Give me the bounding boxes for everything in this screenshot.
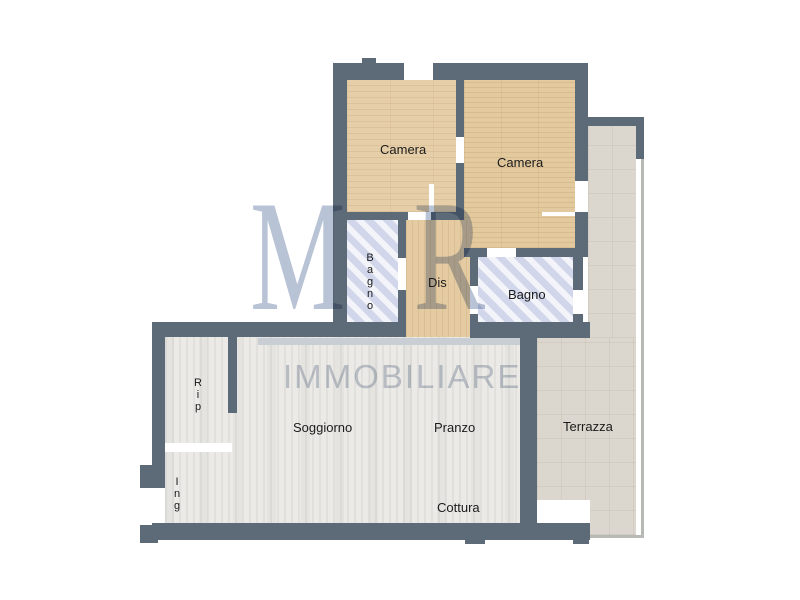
window-bagno2-terrace [573, 290, 583, 314]
floorplan-canvas: MR IMMOBILIARE Camera Camera Bagno Dis B… [0, 0, 800, 600]
wall-bagno2-right-lower [573, 314, 583, 322]
entrance-door-opening [152, 488, 165, 523]
room-label-soggiorno: Soggiorno [293, 420, 352, 435]
terrace-outline-bottom [588, 535, 644, 538]
wall-foot-right [573, 540, 589, 544]
window-top-wall [404, 63, 433, 80]
wall-pranzo-terrace [520, 337, 537, 523]
room-label-dis: Dis [428, 275, 447, 290]
room-label-camera-2: Camera [497, 155, 543, 170]
room-label-terrazza: Terrazza [563, 419, 613, 434]
room-label-pranzo: Pranzo [434, 420, 475, 435]
wall-rip-partition [228, 333, 237, 413]
watermark-brand-text: IMMOBILIARE [283, 358, 521, 396]
door-between-bedrooms [456, 137, 464, 163]
wall-corner-foot-left [140, 525, 158, 543]
wall-bottom [152, 523, 590, 540]
wall-between-bedrooms-upper [456, 80, 464, 137]
rip-closet-strip [165, 443, 232, 452]
window-right-wall [575, 181, 588, 212]
wall-right-lower [575, 212, 588, 257]
room-label-bagno-2: Bagno [508, 287, 546, 302]
wall-top [333, 63, 588, 80]
wall-foot-middle [465, 540, 485, 544]
room-label-bagno-1: Bagno [364, 252, 376, 312]
room-label-rip: Rip [192, 377, 204, 413]
room-label-ing: Ing [171, 476, 183, 512]
room-label-camera-1: Camera [380, 142, 426, 157]
watermark-monogram: MR [250, 178, 553, 336]
wall-left-lower [152, 337, 165, 465]
terrace-door-opening [537, 500, 590, 523]
room-label-cottura: Cottura [437, 500, 480, 515]
wall-left-pillar [140, 465, 165, 488]
wall-terrace-right [636, 117, 644, 159]
terrace-outline-right [641, 159, 644, 538]
wall-terrace-top [588, 117, 643, 126]
wall-right-upper [575, 80, 588, 181]
floor-terrace-upper [588, 126, 636, 338]
wall-bagno2-right-upper [573, 257, 583, 290]
